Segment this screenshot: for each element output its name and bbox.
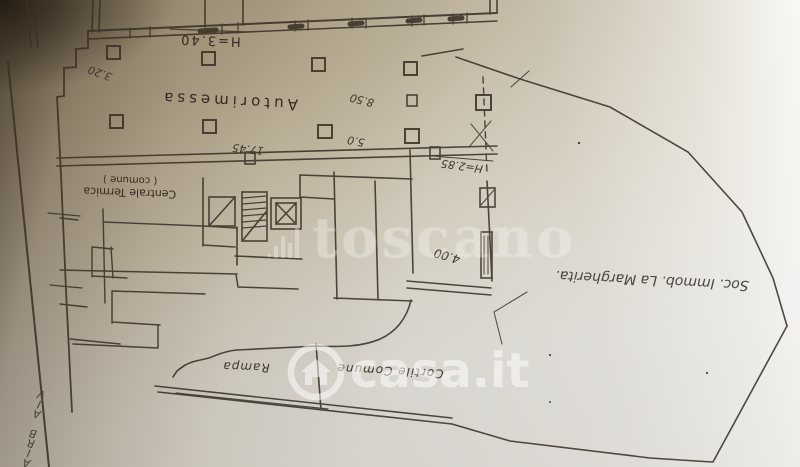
ramp-courtyard — [155, 300, 712, 462]
right-fence — [407, 181, 495, 295]
dim-right-lower: 5.0 — [346, 133, 365, 149]
plan-linework — [0, 0, 800, 467]
label-boiler-room: Centrale Termica ( comune ) — [83, 172, 177, 199]
label-ramp: Rampa — [222, 359, 270, 375]
stair-elevator-core — [203, 178, 302, 265]
garage-wall — [57, 146, 497, 166]
floor-plan-photo: H=3.40 Autorimessa Centrale Termica ( co… — [0, 0, 800, 467]
plan-drawing: H=3.40 Autorimessa Centrale Termica ( co… — [0, 0, 800, 467]
property-boundary — [456, 57, 787, 462]
boiler-room-name: Centrale Termica — [83, 184, 176, 200]
boundary-dash-line — [483, 77, 487, 173]
left-wall — [48, 31, 88, 412]
top-wall — [88, 0, 497, 56]
label-garage-height: H=3.40 — [179, 31, 241, 48]
